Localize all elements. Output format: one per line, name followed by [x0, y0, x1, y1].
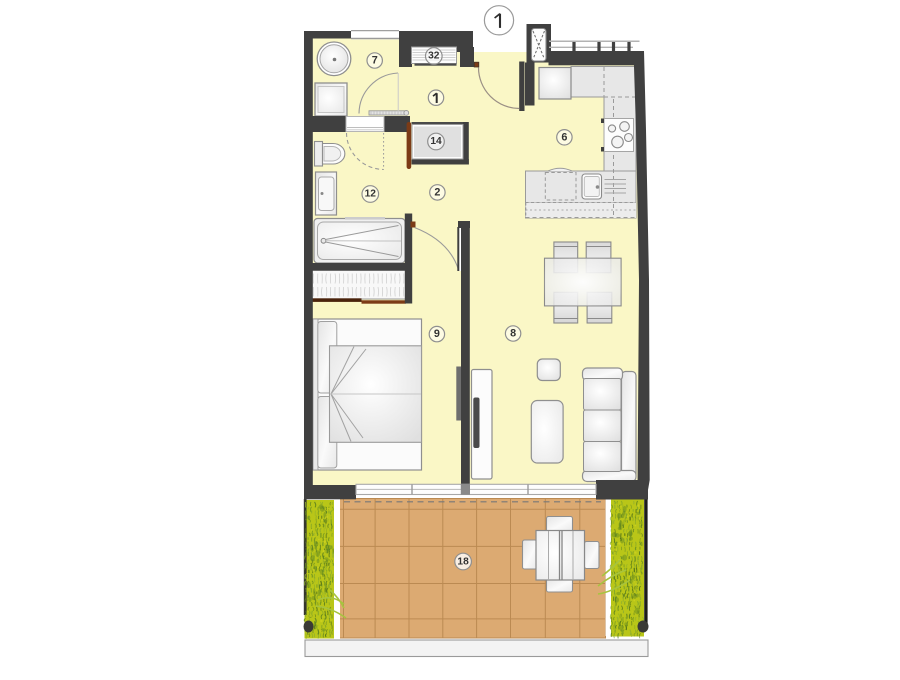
svg-text:32: 32 [428, 51, 440, 62]
svg-text:8: 8 [510, 328, 516, 340]
svg-text:6: 6 [561, 131, 567, 143]
svg-text:14: 14 [430, 136, 442, 147]
svg-text:18: 18 [457, 557, 469, 568]
svg-text:2: 2 [434, 186, 440, 198]
svg-text:9: 9 [434, 328, 440, 340]
svg-text:7: 7 [372, 55, 378, 67]
svg-text:12: 12 [365, 189, 377, 200]
